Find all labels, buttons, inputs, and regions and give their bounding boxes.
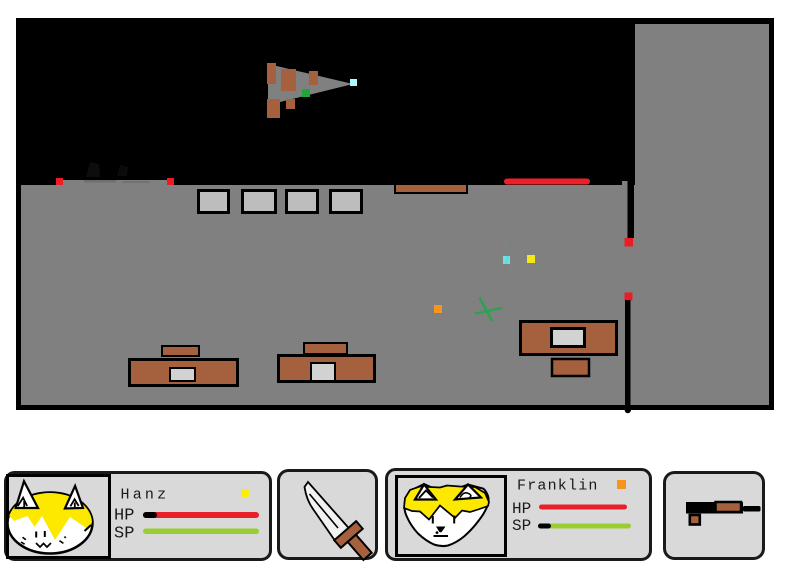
svg-text:HP: HP [114,506,134,525]
svg-text:SP: SP [114,525,134,544]
svg-text:Hanz: Hanz [121,487,170,504]
svg-text:HP: HP [512,500,531,518]
svg-text:SP: SP [512,517,531,535]
svg-text:Franklin: Franklin [517,477,599,494]
